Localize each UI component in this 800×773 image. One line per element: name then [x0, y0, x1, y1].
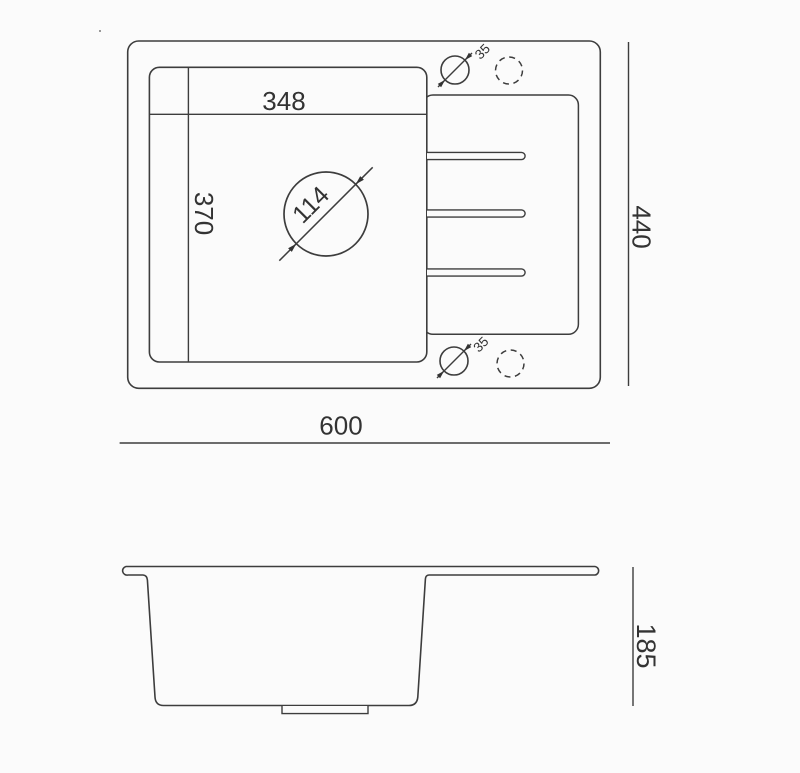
svg-text:440: 440 [627, 205, 657, 248]
svg-text:600: 600 [319, 411, 362, 441]
svg-text:370: 370 [189, 192, 219, 235]
svg-text:348: 348 [262, 86, 305, 116]
svg-text:185: 185 [631, 623, 661, 668]
